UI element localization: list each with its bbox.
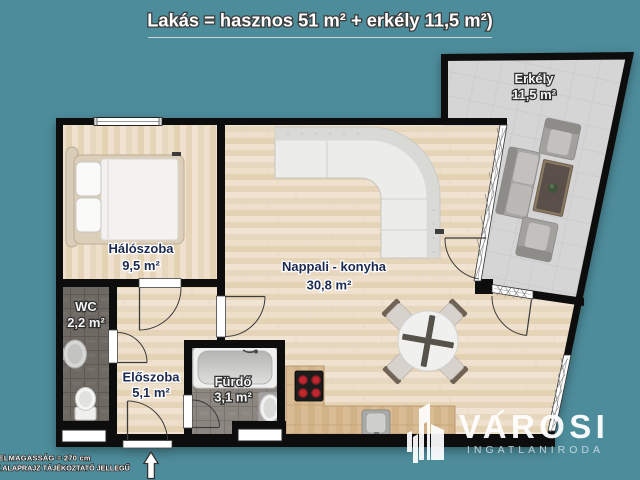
svg-text:3,1 m²: 3,1 m² (214, 390, 252, 405)
svg-text:Lakás = hasznos 51 m² + erkély: Lakás = hasznos 51 m² + erkély 11,5 m²) (147, 10, 493, 31)
svg-text:Fürdő: Fürdő (215, 374, 252, 389)
svg-text:AZ ALAPRAJZ TÁJÉKOZTATÓ JELLEG: AZ ALAPRAJZ TÁJÉKOZTATÓ JELLEGŰ (0, 464, 130, 473)
svg-text:5,1 m²: 5,1 m² (132, 385, 170, 400)
svg-text:Előszoba: Előszoba (122, 370, 180, 385)
svg-text:BELMAGASSÁG = 270 cm: BELMAGASSÁG = 270 cm (0, 454, 91, 463)
svg-text:Erkély: Erkély (514, 71, 554, 86)
svg-text:Hálószoba: Hálószoba (108, 241, 174, 256)
svg-text:2,2 m²: 2,2 m² (67, 315, 105, 330)
svg-text:Nappali - konyha: Nappali - konyha (282, 259, 387, 274)
svg-text:VAROSI: VAROSI (459, 408, 609, 445)
svg-text:INGATLANIRODA: INGATLANIRODA (467, 444, 604, 456)
svg-text:WC: WC (75, 299, 97, 314)
svg-text:30,8 m²: 30,8 m² (307, 278, 352, 293)
svg-text:9,5 m²: 9,5 m² (122, 258, 160, 273)
svg-text:11,5 m²: 11,5 m² (512, 87, 557, 102)
